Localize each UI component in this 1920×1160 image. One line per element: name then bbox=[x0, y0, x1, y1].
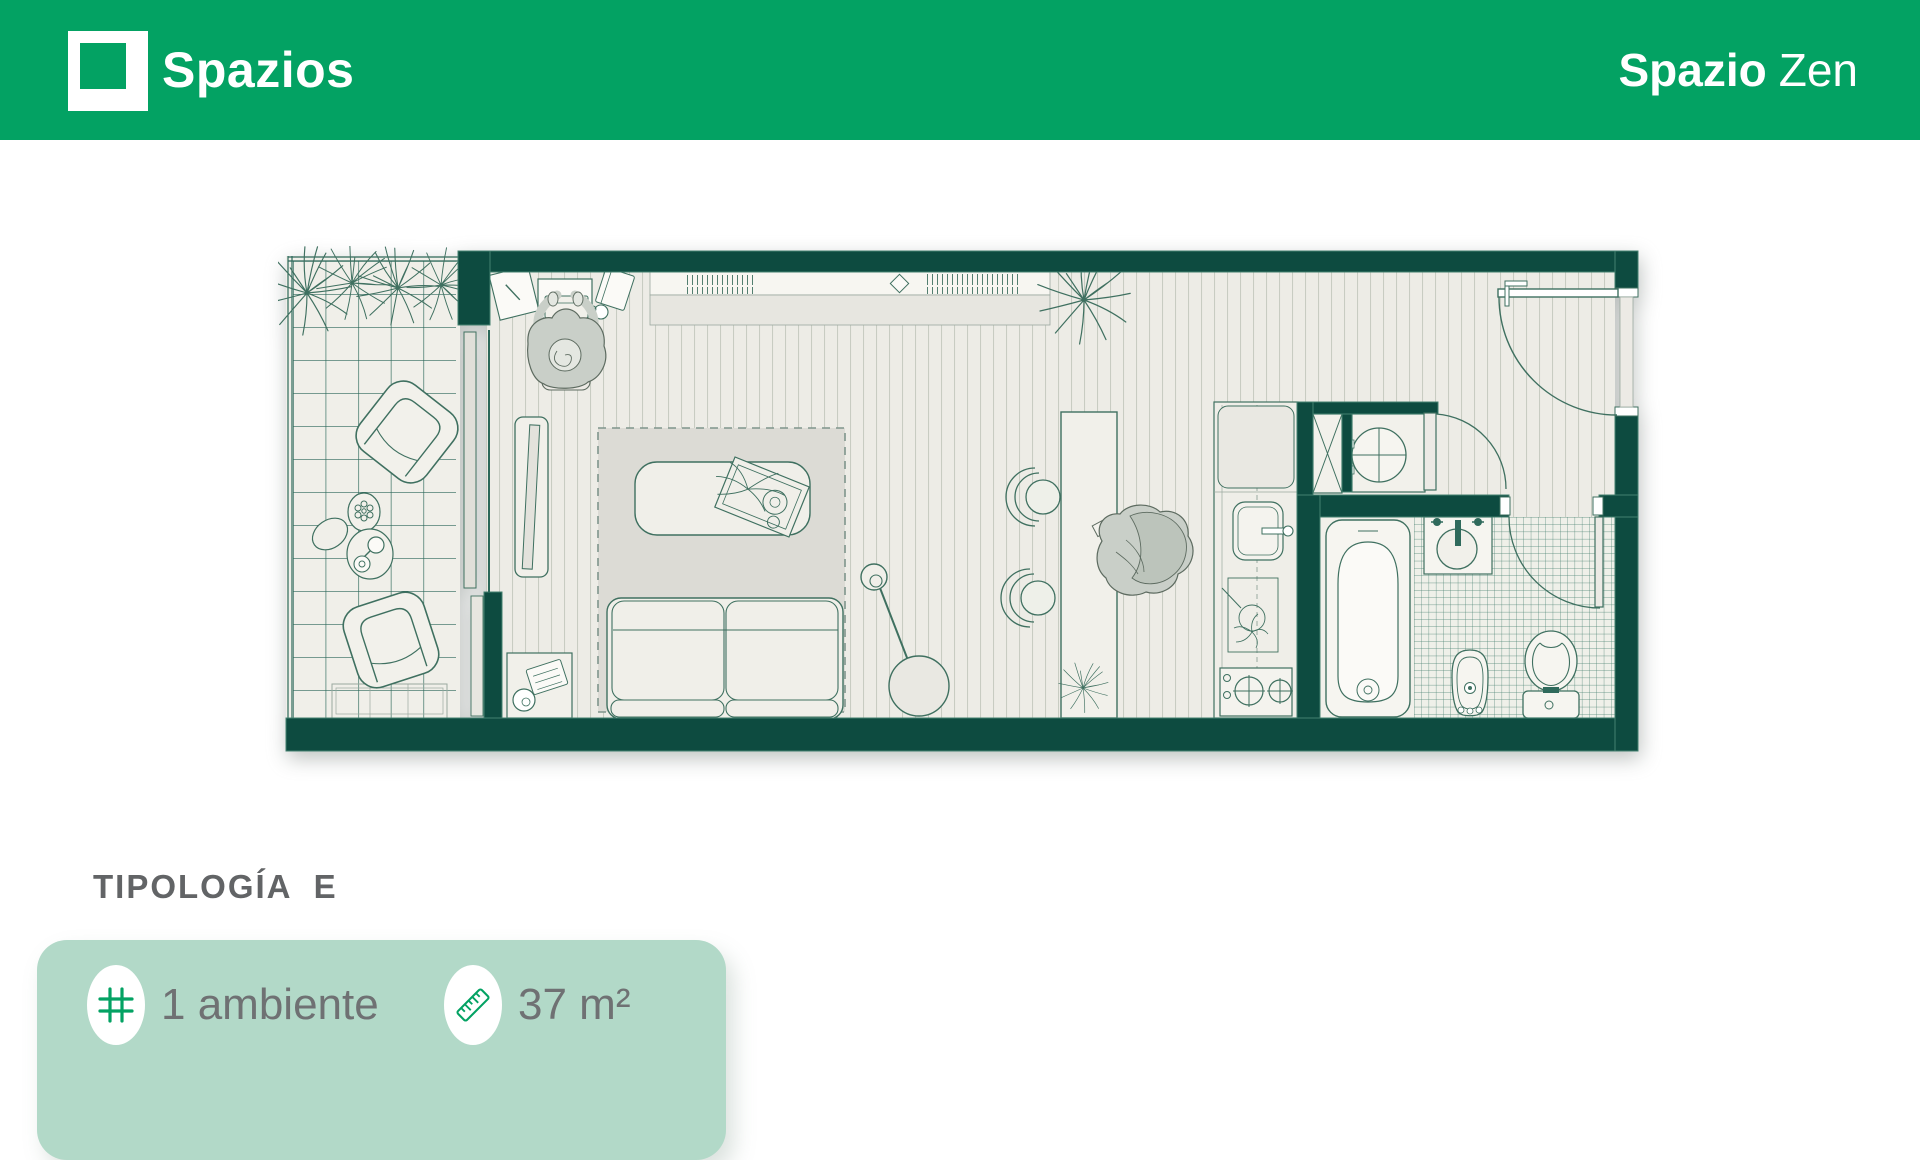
feature-area-label: 37 m² bbox=[518, 965, 630, 1045]
info-card: 1 ambiente 37 m² bbox=[37, 940, 726, 1160]
bathtub bbox=[1326, 520, 1410, 717]
wall-balcony-divider bbox=[484, 592, 502, 723]
wall-bottom bbox=[286, 718, 1638, 751]
ruler-icon bbox=[444, 965, 502, 1045]
books-row-1 bbox=[684, 275, 756, 294]
toilet bbox=[1523, 631, 1579, 718]
side-table bbox=[507, 653, 572, 718]
laundry-closet bbox=[1297, 402, 1438, 497]
balcony-side-table-1 bbox=[348, 493, 380, 531]
app-header: Spazios SpazioZen bbox=[0, 0, 1920, 140]
bathroom-sink bbox=[1424, 517, 1492, 574]
unit-title: SpazioZen bbox=[1618, 0, 1858, 140]
unit-title-secondary: Zen bbox=[1779, 44, 1858, 96]
sofa bbox=[607, 598, 843, 719]
floor-plan bbox=[278, 246, 1648, 756]
grid-icon bbox=[87, 965, 145, 1045]
feature-rooms-label: 1 ambiente bbox=[161, 965, 379, 1045]
wall-bathroom-top-left bbox=[1297, 495, 1509, 517]
wall-right-upper bbox=[1615, 251, 1638, 289]
balcony bbox=[278, 246, 484, 723]
unit-title-primary: Spazio bbox=[1618, 44, 1766, 96]
typology-label: TIPOLOGÍA E bbox=[93, 868, 338, 906]
coffee-table bbox=[635, 452, 810, 537]
wall-closet-top bbox=[1297, 402, 1438, 414]
balcony-side-table-2 bbox=[347, 529, 393, 579]
wall-bathroom-left bbox=[1297, 495, 1320, 718]
brand-name: Spazios bbox=[162, 0, 354, 140]
brand-logo-hole bbox=[80, 43, 126, 89]
wall-closet-left bbox=[1297, 402, 1313, 497]
bidet bbox=[1452, 650, 1488, 716]
wall-right-lower bbox=[1615, 416, 1638, 751]
wall-top-left-stub bbox=[458, 251, 490, 325]
wall-bathroom-top-right bbox=[1599, 495, 1638, 517]
wall-closet-mid bbox=[1342, 414, 1352, 492]
page: { "header": { "brand": "Spazios", "title… bbox=[0, 0, 1920, 1080]
books-row-2 bbox=[924, 274, 1018, 294]
brand-logo-icon bbox=[68, 31, 148, 111]
console-shelf bbox=[650, 272, 1050, 325]
bathroom bbox=[1320, 517, 1615, 718]
fridge bbox=[1218, 406, 1294, 488]
stove bbox=[1220, 668, 1293, 716]
wall-top bbox=[458, 251, 1638, 272]
tv-panel bbox=[515, 417, 548, 577]
kitchen bbox=[1214, 402, 1298, 718]
